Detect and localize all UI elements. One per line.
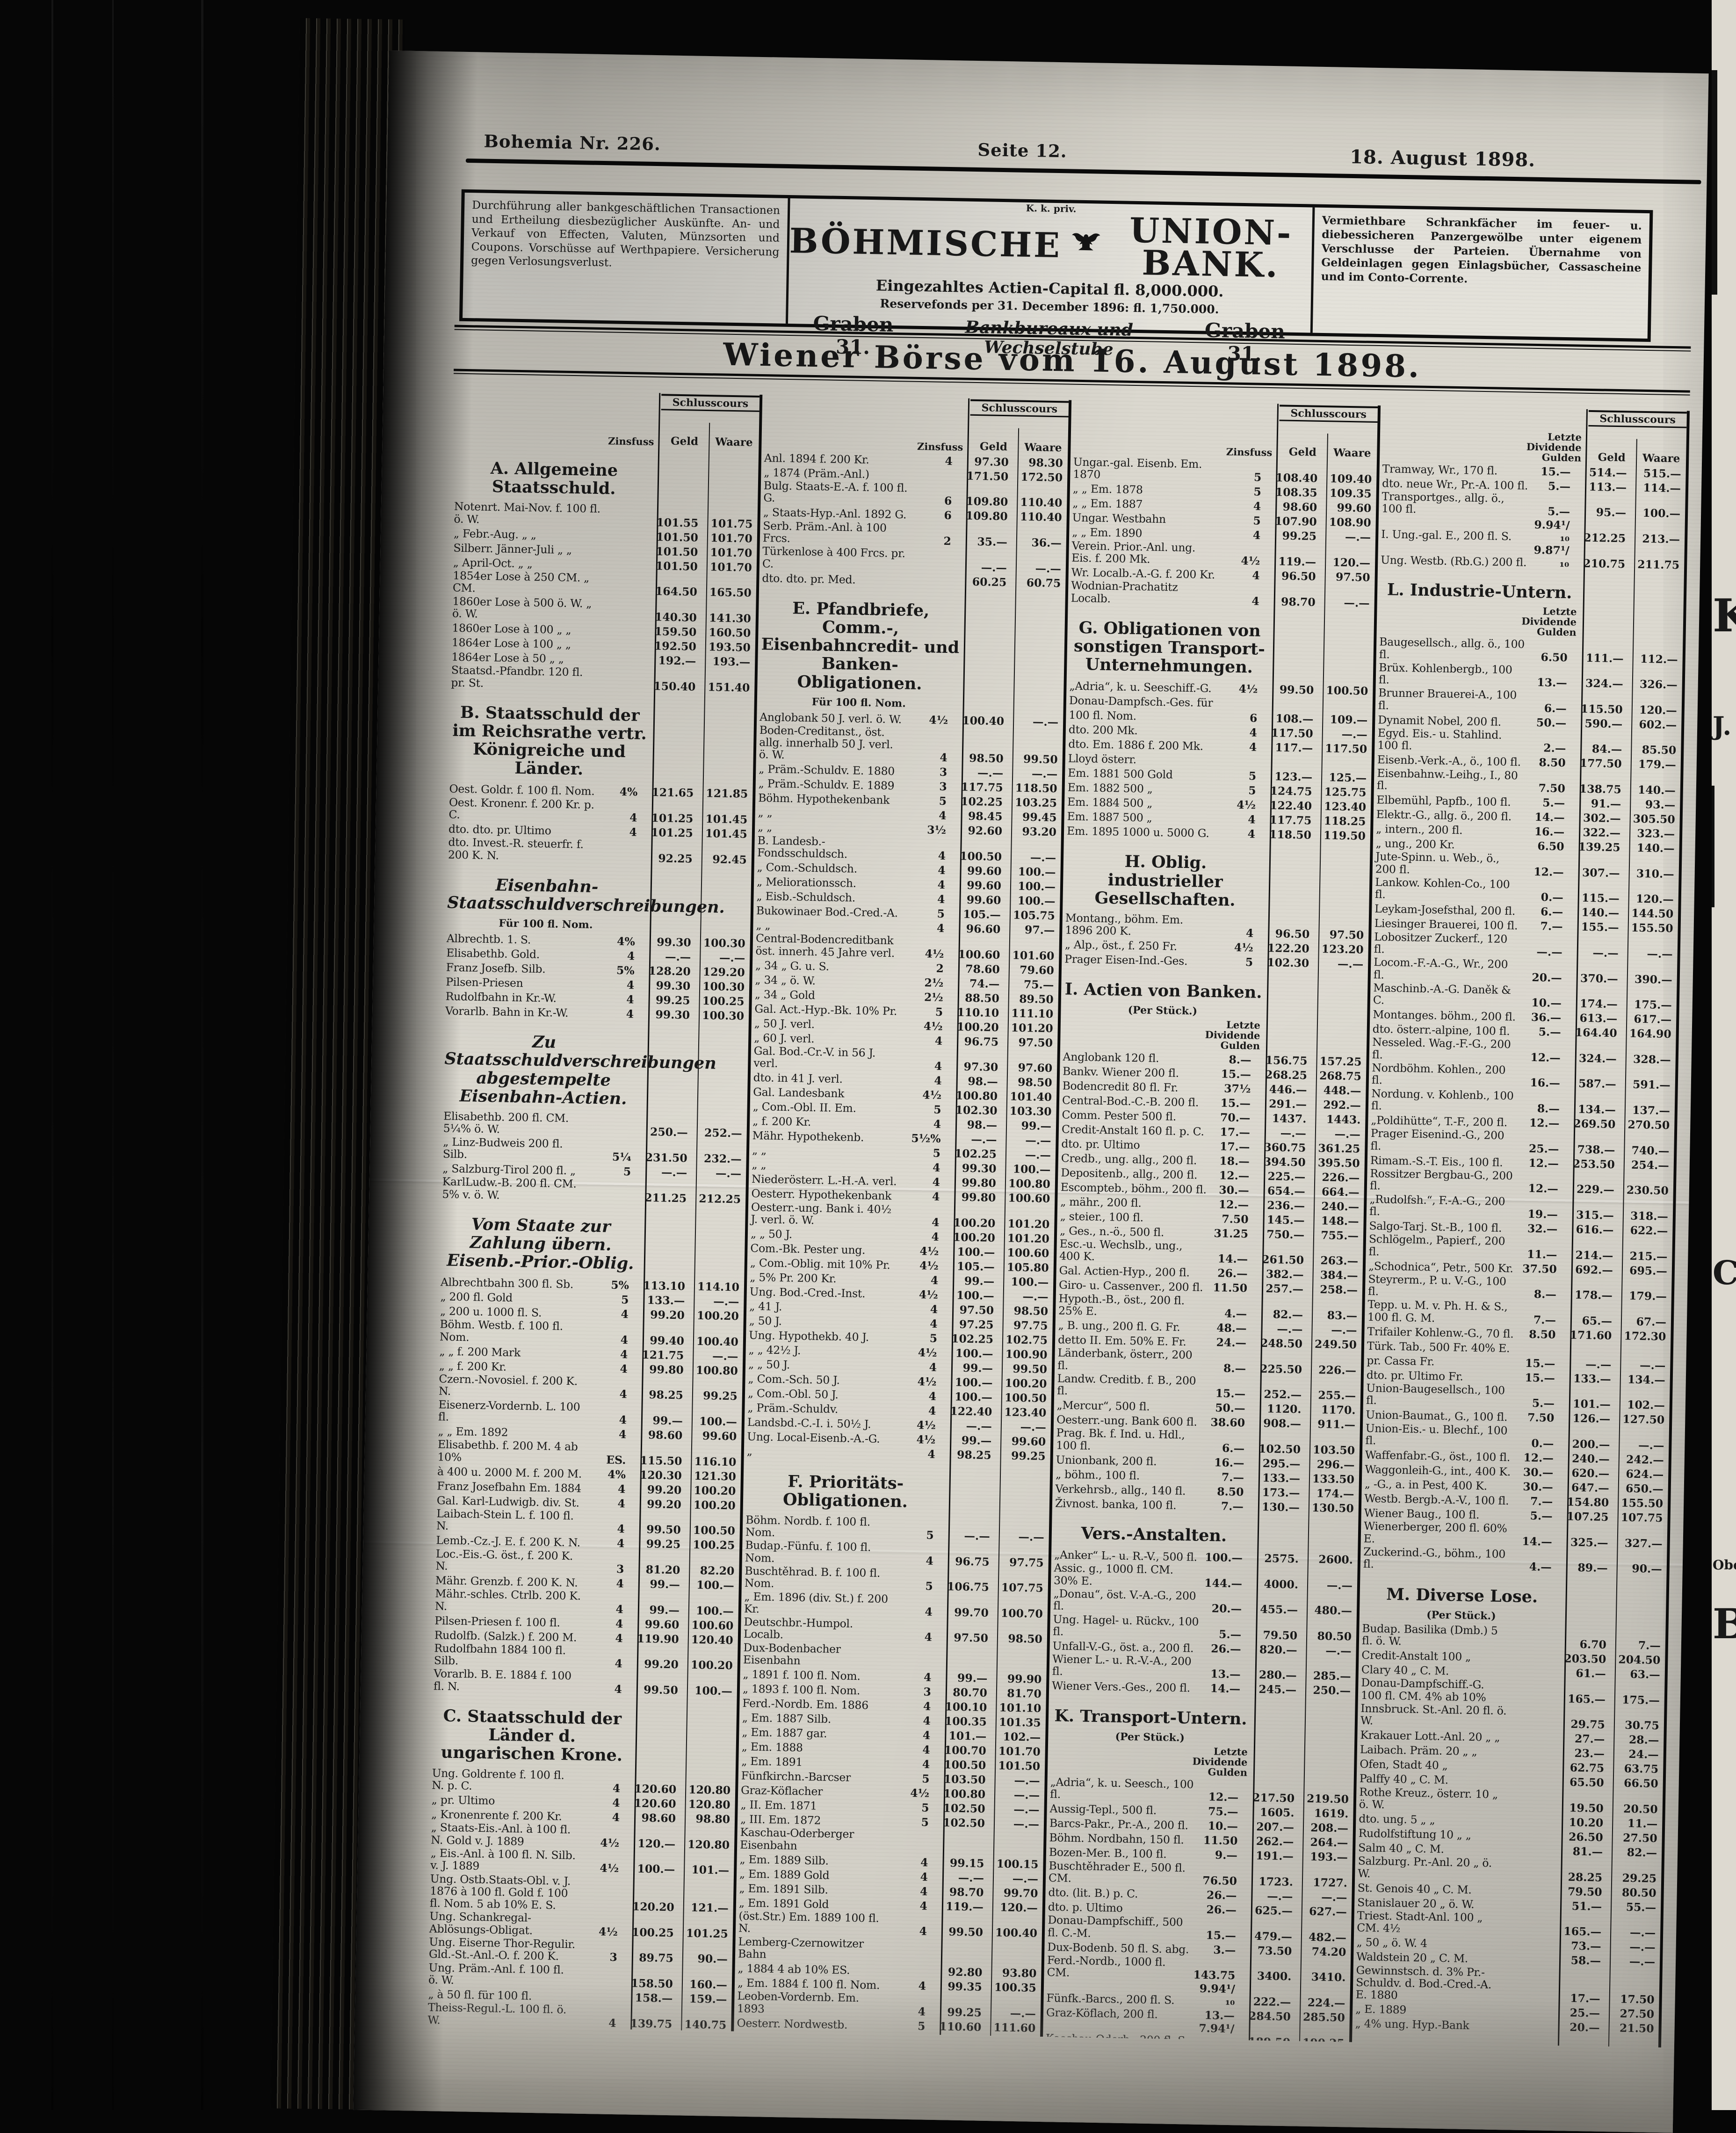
security-name: „ Staats-Hyp.-Anl. 1892 G. <box>762 506 912 521</box>
security-name: Oesterr. Hypothekenbank <box>750 1187 900 1202</box>
geld-value: 192.50 <box>647 640 701 653</box>
geld-value: 156.75 <box>1258 1054 1312 1067</box>
waare-value: 11.— <box>1608 1817 1662 1830</box>
security-name: Elektr.-G., allg. ö., 200 fl. <box>1375 808 1526 823</box>
waare-value: 121.— <box>679 1902 733 1915</box>
geld-value: 99.20 <box>632 1483 686 1496</box>
security-name: „ Com.-Sch. 50 J. <box>747 1373 897 1388</box>
security-name: „ f. 200 Kr. <box>752 1115 902 1130</box>
geld-value: 908.— <box>1251 1417 1306 1430</box>
geld-value: 121.65 <box>644 786 698 799</box>
rate-value: 4 <box>594 993 640 1006</box>
rate-value: 4 <box>893 1605 939 1618</box>
geld-value: 295.— <box>1251 1457 1305 1470</box>
security-name: Vorarlb. B. E. 1884 f. 100 fl. N. <box>433 1668 583 1695</box>
security-name: dto. (lit. B.) p. C. <box>1047 1886 1197 1901</box>
waare-value: 93.— <box>1626 798 1680 811</box>
waare-value: 174.— <box>1304 1487 1359 1500</box>
security-name: Ung. Eiserne Thor-Regulir. Gld.-St.-Anl.… <box>428 1936 579 1963</box>
waare-value: 144.50 <box>1624 907 1678 920</box>
geld-value: 81.20 <box>630 1563 685 1576</box>
waare-value: —.— <box>990 1774 1044 1787</box>
geld-value: 360.75 <box>1256 1141 1310 1154</box>
geld-value: 514.— <box>1577 466 1631 479</box>
rate-value: 4 <box>598 825 644 839</box>
waare-value: 100.— <box>1001 1163 1055 1176</box>
geld-value: 99.50 <box>933 1925 988 1938</box>
section-note: (Per Stück.) <box>1063 1003 1262 1018</box>
waare-value: 100.— <box>1631 507 1685 520</box>
security-name: Credit-Anstalt 100 „ <box>1360 1649 1511 1664</box>
geld-value: 73.50 <box>1242 1944 1296 1957</box>
security-name: Ofen, Stadt 40 „ <box>1359 1758 1509 1773</box>
rate-value: 4½ <box>580 1836 626 1849</box>
security-name: Elbemühl, Papfb., 100 fl. <box>1375 794 1526 809</box>
geld-value: 100.80 <box>948 1090 1002 1103</box>
geld-value: 122.20 <box>1260 942 1314 955</box>
security-name: Leykam-Josefsthal, 200 fl. <box>1374 903 1524 918</box>
rate-value: 4 <box>898 1317 944 1330</box>
geld-label: Geld <box>969 440 1018 454</box>
rate-value: 4½ <box>909 713 955 726</box>
security-name: „ Com.-Schuldsch. <box>756 861 906 876</box>
rate-value: 16.— <box>1205 1456 1251 1469</box>
geld-value: —.— <box>942 1419 997 1432</box>
waare-value: 99.60 <box>687 1430 741 1443</box>
waare-value: 100.30 <box>695 980 749 993</box>
geld-value: 165.— <box>1552 1925 1606 1938</box>
geld-value: 27.— <box>1555 1732 1609 1745</box>
geld-value: 3400. <box>1242 1970 1296 1983</box>
waare-value: 3410. <box>1296 1971 1350 1984</box>
rate-column-label: Zinsfuss <box>917 441 963 453</box>
rate-value: 11.50 <box>1208 1281 1254 1294</box>
geld-value: 95.— <box>1577 506 1631 519</box>
geld-value: 100.60 <box>950 948 1005 961</box>
schlusscours-label: Schlusscours <box>970 399 1069 418</box>
security-name: 1854er Lose à 250 CM. „ CM. <box>452 570 602 597</box>
rate-value: 5 <box>890 1815 935 1829</box>
rate-value: 4½ <box>899 1288 945 1301</box>
rate-value: 5.— <box>1513 1509 1559 1522</box>
security-name: Salm 40 „ C. M. <box>1357 1842 1507 1857</box>
waare-value: 101.70 <box>991 1745 1045 1758</box>
waare-label: Waare <box>1018 441 1068 455</box>
section-heading: F. Prioritäts-Obligationen. <box>746 1472 945 1512</box>
geld-value: 692.— <box>1563 1263 1618 1276</box>
rate-value: 4 <box>896 1447 942 1461</box>
rate-value: 2.— <box>1526 742 1572 755</box>
rate-value: 4.— <box>1512 1561 1558 1574</box>
rate-value: 6.— <box>1524 905 1570 918</box>
waare-value: 121.30 <box>687 1469 741 1482</box>
geld-value: 109.80 <box>958 510 1013 523</box>
security-name: dto. p. Ultimo <box>1047 1901 1197 1916</box>
waare-value: 110.40 <box>1013 511 1067 524</box>
waare-value: 98.30 <box>1013 456 1068 469</box>
rate-value: 3½ <box>907 824 953 837</box>
rate-value: 5.— <box>1515 1397 1561 1410</box>
security-name: „ „ 50 J. <box>747 1358 897 1373</box>
waare-value: 100.— <box>999 1275 1053 1288</box>
waare-value: 240.— <box>1309 1200 1364 1213</box>
waare-value: 268.75 <box>1312 1069 1366 1082</box>
waare-value: —.— <box>1311 1127 1365 1140</box>
geld-value: 28.25 <box>1553 1871 1607 1884</box>
security-name: Rudolfstiftung 10 „ „ <box>1358 1827 1508 1842</box>
waare-value: 148.— <box>1309 1214 1363 1227</box>
rate-value: 4 <box>585 1577 630 1590</box>
security-name: dto. Invest.-R. steuerfr. f. 200 K. N. <box>447 836 598 863</box>
waare-value: 80.50 <box>1606 1886 1661 1899</box>
rate-value: 4 <box>897 1404 942 1417</box>
security-name: Palffy 40 „ C. M. <box>1359 1772 1509 1787</box>
geld-value: 103.50 <box>936 1773 990 1786</box>
rate-value: 5 <box>890 1801 935 1814</box>
price-row: Wodnian-Prachatitz Localb.498.70—.— <box>1070 579 1375 610</box>
geld-value: 1437. <box>1257 1112 1311 1125</box>
security-name: Bankv. Wiener 200 fl. <box>1062 1065 1212 1080</box>
waare-value: 27.50 <box>1607 1831 1662 1844</box>
rate-value: 5 <box>890 1772 936 1785</box>
geld-value: 100.50 <box>936 1758 991 1771</box>
waare-label: Waare <box>1327 446 1377 460</box>
waare-value: 650.— <box>1614 1482 1668 1495</box>
geld-value: 98.25 <box>942 1448 996 1461</box>
rate-value: 4½ <box>902 1089 948 1102</box>
rate-value: 7.— <box>1517 1313 1562 1326</box>
geld-value: 479.— <box>1243 1930 1297 1943</box>
security-name: Waggonleih-G., int., 400 K. <box>1364 1463 1514 1478</box>
price-column-2: SchlusscoursGeldWaareZinsfussAnl. 1894 f… <box>734 395 1071 2037</box>
security-name: Elisabethb. 200 fl. CM. 5¼% ö. W. <box>442 1110 593 1137</box>
waare-value: 100.30 <box>694 1009 749 1022</box>
geld-value: 100.— <box>945 1289 999 1302</box>
security-name: „ Com.-Obl. II. Em. <box>752 1100 902 1115</box>
rate-value: 5¼ <box>592 1150 638 1164</box>
rate-value: 37.50 <box>1518 1262 1563 1275</box>
rate-value: 2 <box>912 535 958 548</box>
rate-value: 4 <box>891 1743 937 1756</box>
geld-value: 99.30 <box>947 1162 1001 1175</box>
security-name: Gal. Act.-Hyp.-Bk. 10% Pr. <box>753 1003 904 1018</box>
geld-value: 587.— <box>1567 1077 1621 1091</box>
geld-value: 302.— <box>1571 811 1626 824</box>
geld-value: 117.75 <box>1262 814 1316 827</box>
section-heading: I. Actien von Banken. <box>1064 980 1263 1002</box>
rate-value: 4½ <box>1221 554 1266 567</box>
edge-ad-block <box>1712 70 1717 295</box>
geld-value: 99.— <box>945 1274 999 1287</box>
geld-value: 192.— <box>646 654 701 667</box>
waare-value: 160.50 <box>701 626 755 639</box>
security-name: Depositenb., allg., 200 fl. <box>1060 1166 1210 1181</box>
waare-value: 175.— <box>1622 998 1677 1011</box>
waare-value: 98.50 <box>998 1304 1053 1317</box>
security-name: dto. dto. pr. Med. <box>761 572 911 587</box>
security-name: „Anker“ L.- u. R.-V., 500 fl. <box>1053 1548 1203 1563</box>
schlusscours-label: Schlusscours <box>661 394 760 412</box>
security-name: Czern.-Novosiel. f. 200 K. N. <box>438 1373 588 1400</box>
waare-value: —.— <box>688 1349 743 1362</box>
waare-value: 480.— <box>1302 1604 1357 1617</box>
security-name: Aussig-Tepl., 500 fl. <box>1049 1803 1199 1818</box>
edge-text-fragment: Oberan <box>1713 1557 1736 1573</box>
security-name: Ungar. Westbahn <box>1071 512 1222 527</box>
waare-value: 102.— <box>991 1730 1045 1743</box>
rate-value: 5 <box>898 1331 944 1345</box>
rate-value: 4 <box>588 1348 634 1361</box>
rate-value: 4½ <box>899 1259 945 1272</box>
security-name: Donau-Dampfschiff., 500 fl. C.-M. <box>1047 1914 1197 1941</box>
security-name: „ intern., 200 fl. <box>1375 823 1525 838</box>
dividend-note: Letzte Dividende Gulden <box>1049 1743 1248 1778</box>
security-name: „ <box>746 1445 896 1460</box>
waare-value: —.— <box>695 951 750 964</box>
security-name: „ „ Em. 1887 <box>1071 497 1222 512</box>
geld-value: 98.60 <box>633 1429 687 1442</box>
waare-value: 102.— <box>1615 1399 1670 1412</box>
rate-value: 4 <box>595 978 641 991</box>
waare-value: 107.75 <box>994 1581 1048 1594</box>
security-name: „ Com.-Oblig. mit 10% Pr. <box>749 1257 899 1272</box>
security-name: „ 1874 (Präm.-Anl.) <box>763 466 913 481</box>
geld-label: Geld <box>659 434 709 448</box>
geld-value: 99.70 <box>939 1606 993 1619</box>
security-name: Verkehrsb., allg., 140 fl. <box>1054 1482 1204 1497</box>
rate-value: 4 <box>586 1497 632 1510</box>
waare-value: 107.75 <box>1613 1511 1667 1524</box>
geld-value: 96.60 <box>951 922 1005 935</box>
rate-value: 3 <box>578 1951 624 1964</box>
rate-value: 7.50 <box>1209 1213 1255 1226</box>
rate-value: 15.— <box>1516 1371 1562 1384</box>
security-name: „ Präm.-Schuldv. <box>746 1402 897 1417</box>
security-name: Credb., ung. allg., 200 fl. <box>1060 1152 1210 1167</box>
geld-value: 133.— <box>1562 1372 1616 1385</box>
security-name: „ Em. 1887 Silb. <box>741 1712 891 1727</box>
waare-value: —.— <box>1008 767 1062 781</box>
waare-value: 99.60 <box>996 1435 1050 1448</box>
waare-value: 100.20 <box>689 1309 744 1323</box>
security-name: Türkenlose à 400 Frcs. pr. C. <box>761 545 912 572</box>
rate-value: 4 <box>906 864 952 877</box>
price-table: SchlusscoursGeldWaareZinsfussA. Allgemei… <box>425 390 1690 2048</box>
rate-value: 8.50 <box>1204 1485 1250 1498</box>
price-row: Zuckerind.-G., böhm., 100 fl.4.—89.—90.— <box>1362 1545 1667 1576</box>
rate-value: 4 <box>913 454 959 467</box>
security-name: Anglobank 50 J. verl. ö. W. <box>759 711 909 726</box>
waare-value: 515.— <box>1631 467 1685 480</box>
geld-value: 99.20 <box>629 1658 683 1671</box>
column-header: SchlusscoursGeldWaareLetzte Dividende Gu… <box>1382 405 1687 466</box>
security-name: Brunner Brauerei-A., 100 fl. <box>1377 687 1528 714</box>
rate-value <box>597 863 643 864</box>
geld-value: 119.90 <box>629 1632 684 1645</box>
waare-value: 250.— <box>1301 1684 1355 1697</box>
security-name: Zuckerind.-G., böhm., 100 fl. <box>1362 1546 1513 1573</box>
rate-value: 6.— <box>1205 1442 1251 1455</box>
geld-value: 211.25 <box>637 1191 691 1204</box>
geld-value: 88.50 <box>950 991 1004 1005</box>
rate-value: 5.— <box>1202 1628 1248 1641</box>
security-name: „ 41 J. <box>748 1300 898 1315</box>
security-name: Prag. Bk. f. Ind. u. Hdl., 100 fl. <box>1055 1427 1206 1454</box>
rate-value: 18.— <box>1210 1155 1256 1168</box>
geld-value: 6.70 <box>1557 1638 1611 1651</box>
rate-value: 4 <box>587 1428 633 1441</box>
geld-value: 96.50 <box>1260 927 1314 940</box>
rate-value: 8.50 <box>1526 756 1572 769</box>
waare-value: 208.— <box>1299 1822 1353 1835</box>
rate-value: 5% <box>590 1279 636 1292</box>
security-name: „ Em. 1889 Silb. <box>738 1853 889 1868</box>
geld-value: 120.60 <box>626 1797 680 1810</box>
security-name: Bukowinaer Bod.-Cred.-A. <box>755 904 905 919</box>
geld-value: 455.— <box>1248 1603 1302 1616</box>
rate-value: 76.50 <box>1198 1874 1244 1887</box>
waare-value: —.— <box>1606 1926 1660 1939</box>
geld-value: 96.75 <box>940 1555 994 1568</box>
security-name: Central-Bod.-C.-B. 200 fl. <box>1061 1094 1211 1109</box>
bank-name-left: BÖHMISCHE <box>789 225 1062 262</box>
security-name: Laibach-Stein L. f. 100 fl. N. <box>435 1507 586 1534</box>
waare-value: 255.— <box>1306 1389 1360 1402</box>
waare-value: 60.75 <box>1011 576 1065 589</box>
security-name: Comm. Pester 500 fl. <box>1061 1108 1211 1123</box>
waare-value: —.— <box>998 1290 1053 1303</box>
waare-value: —.— <box>1318 728 1372 741</box>
rate-value: 7.50 <box>1515 1411 1561 1424</box>
waare-value: 296.— <box>1305 1458 1359 1471</box>
geld-value: 165.— <box>1556 1692 1610 1706</box>
waare-value: 97.75 <box>998 1319 1052 1332</box>
waare-value: —.— <box>692 1167 746 1180</box>
rate-value: 4 <box>586 1522 631 1535</box>
security-name: Prager Eisen-Ind.-Ges. <box>1063 953 1214 968</box>
waare-value: 100.70 <box>993 1607 1048 1620</box>
geld-value: 229.— <box>1565 1183 1619 1196</box>
geld-value: 65.50 <box>1555 1776 1609 1789</box>
rate-value: 17.— <box>1211 1126 1257 1139</box>
security-name: „ Febr.-Aug. „ „ <box>453 527 603 542</box>
rate-value: 8.— <box>1207 1361 1252 1374</box>
geld-value: 613.— <box>1568 1012 1622 1025</box>
geld-value: 58.— <box>1551 1954 1606 1967</box>
geld-value: 61.— <box>1556 1667 1611 1680</box>
geld-value: 98.25 <box>634 1388 688 1402</box>
rate-value: 4 <box>907 809 953 822</box>
rate-value: 4 <box>901 1176 947 1189</box>
geld-value: 117.50 <box>1264 727 1318 740</box>
waare-value: 1443. <box>1311 1113 1365 1126</box>
waare-value: —.— <box>1303 1578 1357 1591</box>
geld-value: 100.— <box>625 1863 680 1876</box>
waare-value: —.— <box>1006 851 1061 864</box>
geld-value: 105.— <box>951 908 1005 921</box>
security-name: „ Com.-Obl. 50 J. <box>747 1387 897 1402</box>
rate-value: 8.— <box>1517 1288 1563 1301</box>
security-name: „ 50 J. <box>748 1315 898 1330</box>
security-name: Ung. Westb. (Rb.G.) 200 fl. <box>1380 554 1530 569</box>
security-name: Ung. Goldrente f. 100 fl. N. p. C. <box>431 1767 581 1794</box>
waare-value: 100.— <box>1005 894 1060 907</box>
waare-value: 215.— <box>1618 1250 1672 1263</box>
geld-value: 177.50 <box>1572 757 1627 770</box>
edge-text-fragment: Ce <box>1713 1253 1736 1292</box>
geld-value: —.— <box>1253 1323 1307 1336</box>
geld-value: 200.— <box>1560 1438 1614 1451</box>
security-name: „ Em. 1889 Gold <box>738 1867 889 1882</box>
geld-value: 99.30 <box>641 979 695 992</box>
rate-value: 36.— <box>1522 1011 1568 1024</box>
waare-value: —.— <box>1001 1134 1056 1147</box>
waare-value: 664.— <box>1309 1185 1364 1198</box>
waare-value: 624.— <box>1614 1468 1668 1481</box>
waare-value: 100.60 <box>999 1246 1054 1259</box>
waare-value: 100.20 <box>683 1659 738 1672</box>
security-name: „ steier., 100 fl. <box>1059 1210 1209 1225</box>
waare-value: 93.80 <box>987 1967 1041 1980</box>
security-name: Ung. Hypothekb. 40 J. <box>748 1329 898 1344</box>
waare-value: 74.20 <box>1296 1945 1351 1958</box>
waare-value: 193.— <box>701 655 755 668</box>
security-name: „Donau“, öst. V.-A.-G., 200 fl. <box>1052 1587 1203 1614</box>
rate-value: 16.— <box>1525 825 1571 839</box>
rate-value: 4 <box>892 1670 938 1684</box>
rate-value: 5 <box>1222 485 1268 499</box>
geld-value: 115.50 <box>1573 702 1627 716</box>
rate-value: 26.— <box>1197 1889 1243 1902</box>
geld-value: 123.— <box>1263 770 1317 783</box>
waare-value: 100.40 <box>988 1926 1042 1939</box>
security-name: „ 50 J. verl. <box>753 1017 904 1032</box>
waare-value: —.— <box>990 1803 1044 1816</box>
security-name: Wienerberger, 200 fl. 60% E. <box>1363 1520 1513 1547</box>
rate-value: 144.— <box>1203 1576 1249 1590</box>
geld-value: 73.— <box>1551 1939 1606 1952</box>
geld-value: 100.20 <box>946 1216 1000 1229</box>
geld-value: 616.— <box>1564 1223 1618 1236</box>
waare-value: 100.— <box>683 1684 737 1697</box>
waare-value: 99.70 <box>988 1887 1042 1900</box>
security-name: Jute-Spinn. u. Web., ö., 200 fl. <box>1374 850 1525 877</box>
waare-value: 264.— <box>1298 1836 1353 1849</box>
waare-value: 252.— <box>692 1127 746 1140</box>
security-name: Notenrt. Mai-Nov. f. 100 fl. ö. W. <box>453 500 603 528</box>
rate-value: 4 <box>901 1161 947 1174</box>
geld-value: 98.60 <box>1267 500 1322 513</box>
rate-value: 26.— <box>1201 1642 1247 1656</box>
waare-value: 114.10 <box>690 1280 744 1294</box>
security-name: 100 fl. Nom. <box>1068 709 1218 724</box>
geld-value: 291.— <box>1257 1097 1311 1110</box>
waare-value: 242.— <box>1614 1453 1669 1466</box>
rate-value: 143.75 <box>1193 1969 1242 1982</box>
geld-value: 155.— <box>1569 921 1623 934</box>
security-name: „ Staats-Eis.-Anl. à 100 fl. N. Gold v. … <box>430 1821 580 1848</box>
waare-value: 258.— <box>1308 1283 1362 1296</box>
security-name: Trifailer Kohlenw.-G., 70 fl. <box>1366 1325 1516 1340</box>
waare-value: 63.— <box>1611 1668 1665 1681</box>
geld-value: 99.80 <box>634 1363 688 1376</box>
waare-value: 310.— <box>1624 867 1678 880</box>
security-name: „Poldihütte“, T.-F., 200 fl. <box>1370 1114 1520 1129</box>
waare-value: 254.— <box>1620 1158 1674 1171</box>
security-name: „ 34 „ Gold <box>754 988 904 1003</box>
geld-value: 98.50 <box>954 752 1008 765</box>
security-name: 1860er Lose à 500 ö. W. „ ö. W. <box>451 595 602 622</box>
